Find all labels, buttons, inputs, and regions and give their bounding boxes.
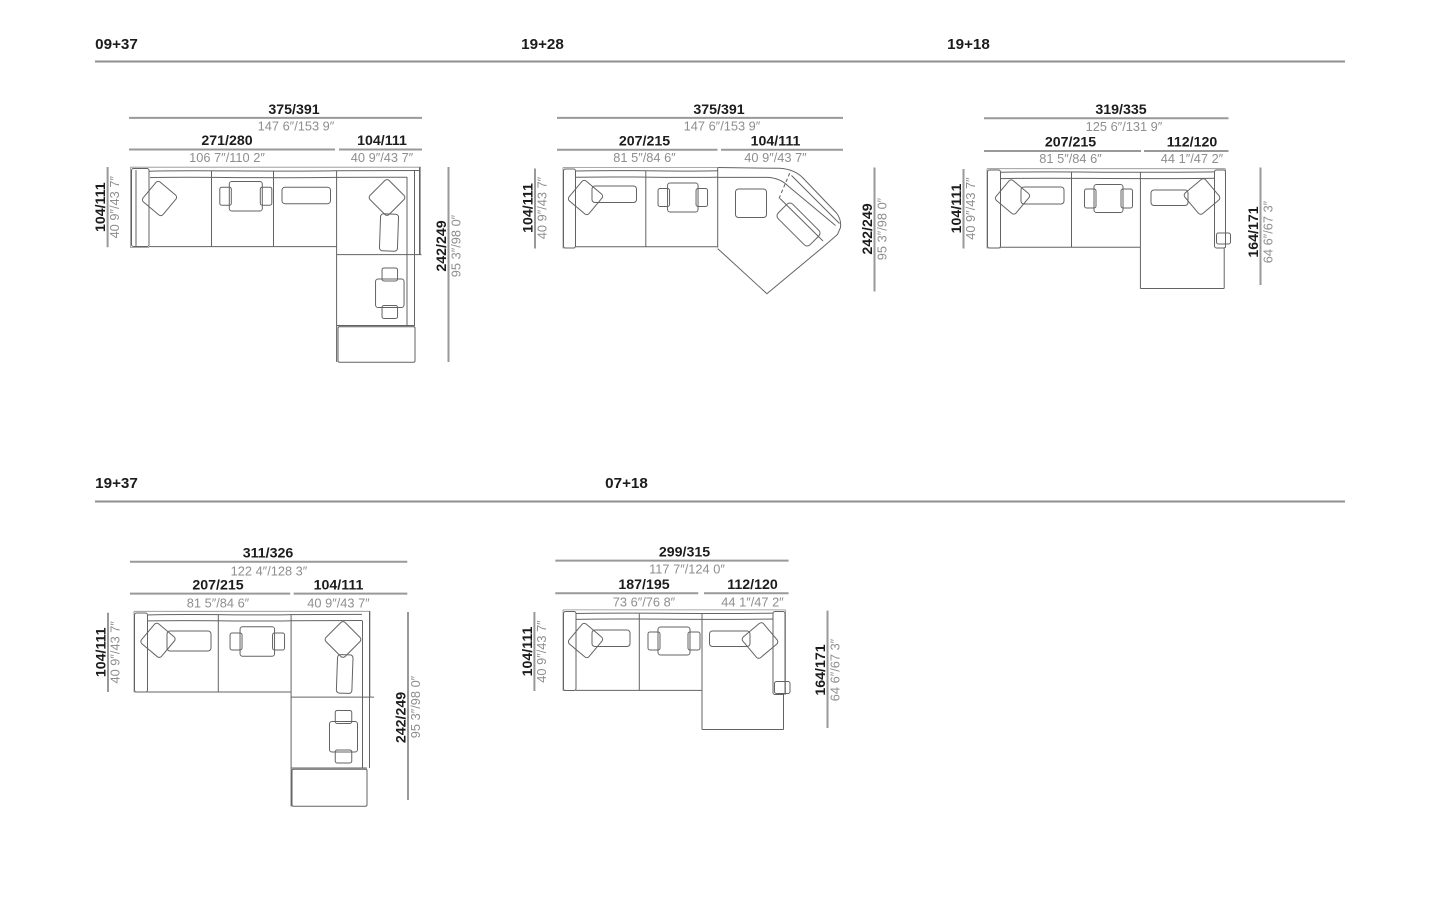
svg-text:147 6″/153 9″: 147 6″/153 9″ bbox=[684, 119, 761, 134]
svg-text:64 6″/67 3″: 64 6″/67 3″ bbox=[1261, 200, 1276, 263]
svg-text:40 9″/43 7″: 40 9″/43 7″ bbox=[108, 621, 123, 684]
svg-text:81 5″/84 6″: 81 5″/84 6″ bbox=[187, 595, 250, 610]
svg-text:125 6″/131 9″: 125 6″/131 9″ bbox=[1086, 119, 1163, 134]
svg-text:40 9″/43 7″: 40 9″/43 7″ bbox=[744, 150, 807, 165]
svg-text:122 4″/128 3″: 122 4″/128 3″ bbox=[231, 564, 308, 579]
svg-text:44 1″/47 2″: 44 1″/47 2″ bbox=[1161, 151, 1224, 166]
svg-text:147 6″/153 9″: 147 6″/153 9″ bbox=[258, 119, 335, 134]
svg-text:95 3″/98 0″: 95 3″/98 0″ bbox=[408, 675, 423, 738]
svg-text:104/111: 104/111 bbox=[751, 134, 801, 150]
svg-text:40 9″/43 7″: 40 9″/43 7″ bbox=[307, 595, 370, 610]
svg-text:104/111: 104/111 bbox=[357, 133, 407, 149]
svg-text:07+18: 07+18 bbox=[605, 475, 648, 492]
svg-text:95 3″/98 0″: 95 3″/98 0″ bbox=[449, 214, 464, 277]
svg-text:73 6″/76 8″: 73 6″/76 8″ bbox=[613, 595, 676, 610]
svg-text:112/120: 112/120 bbox=[1167, 135, 1218, 151]
svg-text:40 9″/43 7″: 40 9″/43 7″ bbox=[963, 177, 978, 240]
svg-text:311/326: 311/326 bbox=[243, 546, 294, 562]
svg-text:104/111: 104/111 bbox=[314, 578, 364, 594]
svg-text:40 9″/43 7″: 40 9″/43 7″ bbox=[534, 620, 549, 683]
svg-text:207/215: 207/215 bbox=[192, 578, 243, 594]
svg-text:112/120: 112/120 bbox=[727, 577, 778, 593]
svg-text:187/195: 187/195 bbox=[618, 577, 669, 593]
svg-text:19+37: 19+37 bbox=[95, 475, 138, 492]
svg-text:81 5″/84 6″: 81 5″/84 6″ bbox=[1039, 151, 1102, 166]
svg-text:95 3″/98 0″: 95 3″/98 0″ bbox=[875, 197, 890, 260]
svg-text:117 7″/124 0″: 117 7″/124 0″ bbox=[649, 562, 725, 577]
svg-text:44 1″/47 2″: 44 1″/47 2″ bbox=[721, 595, 784, 610]
svg-text:40 9″/43 7″: 40 9″/43 7″ bbox=[351, 150, 414, 165]
svg-text:106 7″/110 2″: 106 7″/110 2″ bbox=[189, 150, 265, 165]
svg-text:19+18: 19+18 bbox=[947, 36, 990, 53]
svg-text:40 9″/43 7″: 40 9″/43 7″ bbox=[535, 176, 550, 239]
svg-text:299/315: 299/315 bbox=[659, 545, 710, 561]
svg-text:271/280: 271/280 bbox=[201, 133, 252, 149]
svg-text:64 6″/67 3″: 64 6″/67 3″ bbox=[828, 638, 843, 701]
svg-text:319/335: 319/335 bbox=[1095, 102, 1146, 118]
svg-text:19+28: 19+28 bbox=[521, 36, 564, 53]
svg-text:375/391: 375/391 bbox=[268, 102, 319, 118]
svg-text:375/391: 375/391 bbox=[693, 102, 744, 118]
svg-text:207/215: 207/215 bbox=[619, 134, 670, 150]
svg-text:40 9″/43 7″: 40 9″/43 7″ bbox=[107, 176, 122, 239]
svg-text:09+37: 09+37 bbox=[95, 36, 138, 53]
svg-text:207/215: 207/215 bbox=[1045, 135, 1096, 151]
svg-text:81 5″/84 6″: 81 5″/84 6″ bbox=[613, 150, 676, 165]
